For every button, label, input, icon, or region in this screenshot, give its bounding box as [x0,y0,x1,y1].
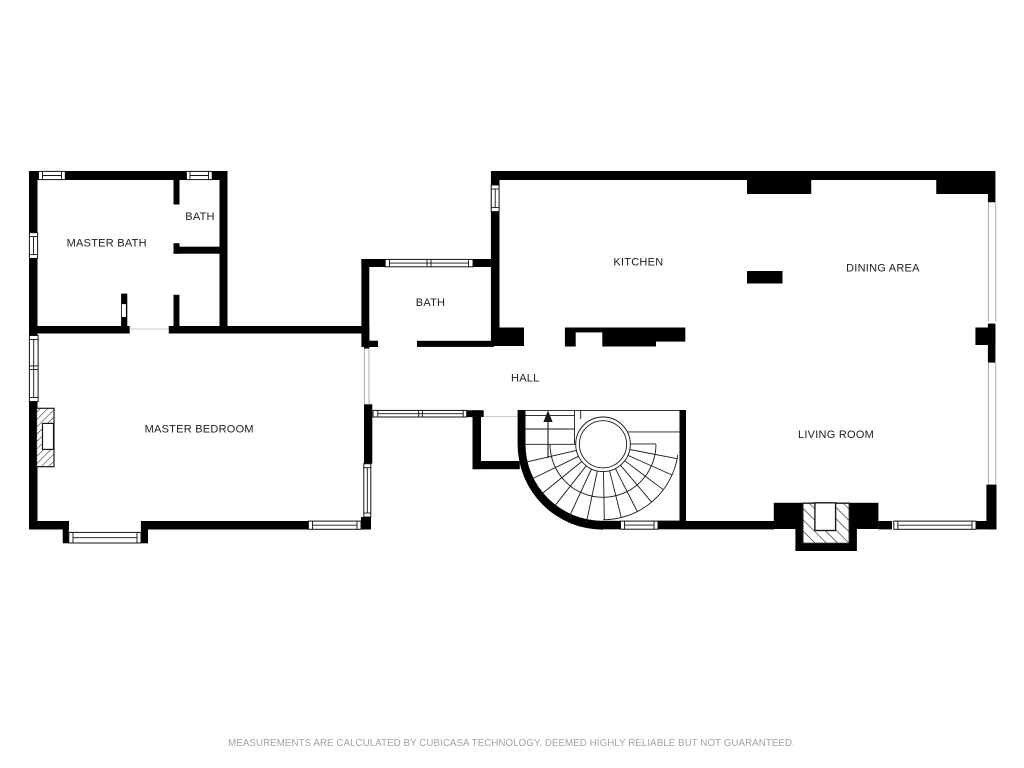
svg-text:KITCHEN: KITCHEN [613,257,663,269]
svg-text:MASTER BATH: MASTER BATH [67,238,147,250]
svg-text:BATH: BATH [185,211,215,223]
svg-text:DINING AREA: DINING AREA [846,263,920,275]
svg-text:LIVING ROOM: LIVING ROOM [798,429,874,441]
svg-text:BATH: BATH [416,297,446,309]
svg-text:MASTER BEDROOM: MASTER BEDROOM [145,424,254,436]
svg-text:MEASUREMENTS ARE CALCULATED BY: MEASUREMENTS ARE CALCULATED BY CUBICASA … [228,738,795,749]
svg-text:HALL: HALL [511,373,540,385]
